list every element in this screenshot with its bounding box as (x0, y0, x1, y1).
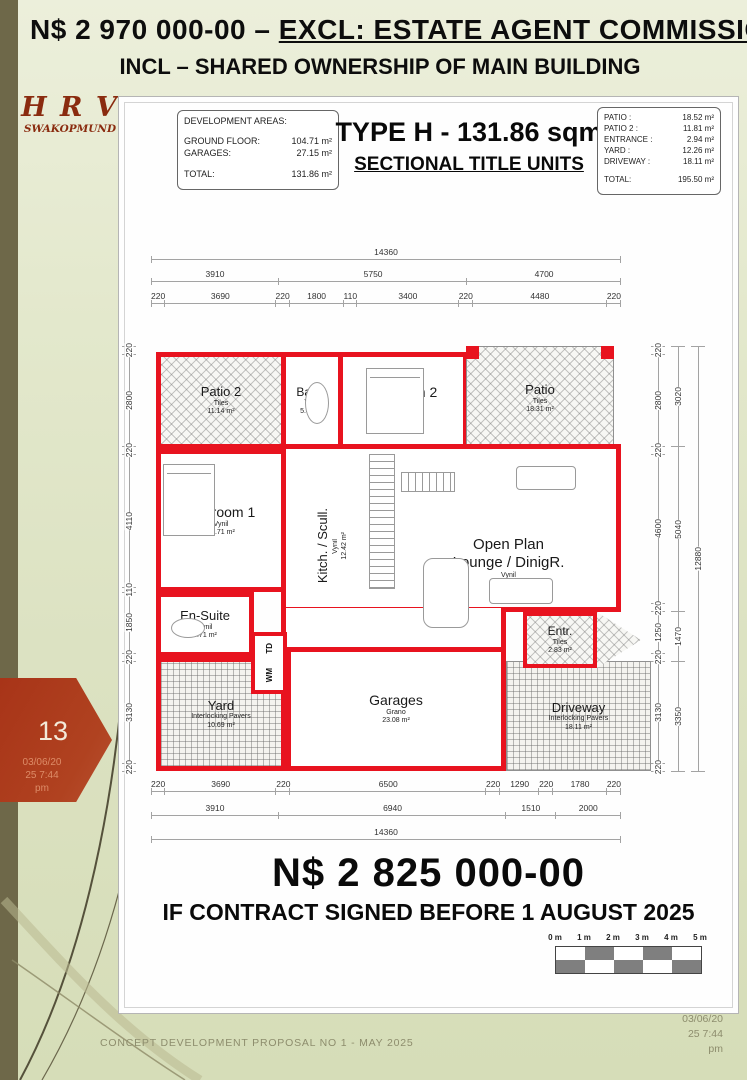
development-areas-title: DEVELOPMENT AREAS: (184, 115, 332, 127)
dim-left: 2202800220411011018502203130220 (122, 346, 136, 772)
ensuite-basin (171, 618, 205, 638)
header-ownership-line: INCL – SHARED OWNERSHIP OF MAIN BUILDING (30, 54, 730, 80)
laundry-nook: TD WM (251, 632, 287, 694)
dim-bottom-mid: 3910694015102000 (151, 803, 621, 818)
dim-top-mid: 391057504700 (151, 269, 621, 284)
plan-title: TYPE H - 131.86 sqm (324, 117, 614, 148)
kitchen-label: Kitch. / Scull. Vynil 12.42 m² (309, 486, 353, 606)
room-patio: Patio Tiles 18.31 m² (466, 346, 614, 451)
entrance-canopy (597, 612, 641, 668)
dim-right-inner: 2202800220460022012502203130220 (651, 346, 665, 772)
header-price: N$ 2 970 000-00 (30, 14, 246, 45)
development-areas-total: TOTAL: 131.86 m² (184, 168, 332, 180)
staircase-landing (401, 472, 455, 492)
washing-machine-label: WM (265, 668, 274, 682)
bed-bedroom1 (163, 464, 215, 536)
promo-price: N$ 2 825 000-00 (119, 851, 738, 896)
plan-title-block: TYPE H - 131.86 sqm SECTIONAL TITLE UNIT… (324, 117, 614, 176)
page-number: 13 (38, 716, 68, 747)
site-areas-total: TOTAL: 195.50 m² (604, 174, 714, 185)
hrv-logo: H R V SWAKOPMUND (14, 92, 126, 135)
room-garages: Garages Grano 23.08 m² (286, 647, 506, 771)
dining-table (423, 558, 469, 628)
dim-top-total: 14360 (151, 247, 621, 262)
room-driveway: Driveway Interlocking Pavers 18.11 m² (506, 661, 651, 771)
site-areas-rows: PATIO :18.52 m²PATIO 2 :11.81 m²ENTRANCE… (604, 112, 714, 167)
dim-bottom-detail: 2203690220650022012902201780220 (151, 779, 621, 794)
footer-date: 03/06/20 25 7:44 pm (682, 1012, 723, 1057)
tumble-dryer-label: TD (265, 643, 274, 654)
development-areas-rows: GROUND FLOOR:104.71 m²GARAGES:27.15 m² (184, 135, 332, 159)
bed-bedroom2 (366, 368, 424, 434)
footer-proposal-text: CONCEPT DEVELOPMENT PROPOSAL NO 1 - MAY … (100, 1037, 414, 1049)
sofa-2 (516, 466, 576, 490)
scale-bar: 0 m1 m2 m3 m4 m5 m (555, 933, 705, 977)
header-commission-note: EXCL: ESTATE AGENT COMMISSION (279, 14, 747, 45)
page-number-badge: 13 03/06/20 25 7:44 pm (0, 678, 112, 802)
plan-sheet: DEVELOPMENT AREAS: GROUND FLOOR:104.71 m… (118, 96, 739, 1014)
page-header: N$ 2 970 000-00 – EXCL: ESTATE AGENT COM… (30, 14, 730, 80)
development-areas-table: DEVELOPMENT AREAS: GROUND FLOOR:104.71 m… (177, 110, 339, 190)
site-areas-table: PATIO :18.52 m²PATIO 2 :11.81 m²ENTRANCE… (597, 107, 721, 195)
plan-subtitle: SECTIONAL TITLE UNITS (324, 154, 614, 176)
scale-bar-checker (555, 946, 702, 974)
left-olive-bar (0, 0, 18, 1080)
proposal-page: N$ 2 970 000-00 – EXCL: ESTATE AGENT COM… (0, 0, 747, 1080)
header-separator: – (246, 14, 279, 45)
dim-bottom-total: 14360 (151, 827, 621, 842)
floor-plan: Patio 2 Tiles 11.14 m² Bathr. Vynil 5.42… (151, 346, 621, 771)
room-entrance: Entr. Tiles 2.83 m² (523, 612, 597, 668)
hrv-logo-text: H R V (14, 92, 126, 123)
scullery-passage (281, 608, 506, 652)
dim-right-mid: 3020504014703350 (671, 346, 685, 772)
badge-date: 03/06/20 25 7:44 pm (0, 756, 84, 795)
header-price-line: N$ 2 970 000-00 – EXCL: ESTATE AGENT COM… (30, 14, 730, 46)
room-patio2: Patio 2 Tiles 11.14 m² (156, 352, 286, 449)
promo-condition: IF CONTRACT SIGNED BEFORE 1 AUGUST 2025 (119, 899, 738, 926)
dim-right-total: 12880 (691, 346, 705, 772)
sofa (489, 578, 553, 604)
bathtub (305, 382, 329, 424)
staircase (369, 454, 395, 589)
hrv-logo-subtext: SWAKOPMUND (14, 123, 126, 135)
dim-top-detail: 2203690220180011034002204480220 (151, 291, 621, 306)
